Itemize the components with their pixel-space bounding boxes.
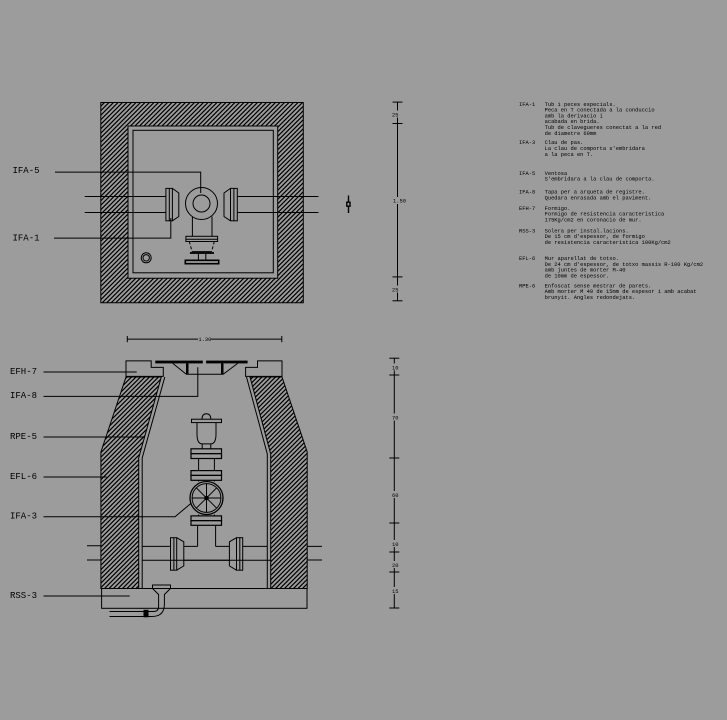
svg-text:25: 25 (392, 288, 398, 294)
svg-text:10: 10 (392, 366, 398, 372)
svg-text:1.50: 1.50 (393, 199, 406, 205)
svg-text:de diametre 60mm: de diametre 60mm (545, 131, 597, 137)
svg-text:175Kg/cm2 en coronacio de mur.: 175Kg/cm2 en coronacio de mur. (545, 217, 642, 223)
svg-text:EFH-7: EFH-7 (519, 206, 535, 212)
svg-text:25: 25 (392, 113, 398, 119)
svg-text:IFA-5: IFA-5 (13, 166, 40, 176)
svg-text:IFA-8: IFA-8 (519, 190, 535, 196)
svg-text:IFA-1: IFA-1 (519, 102, 535, 108)
svg-text:RSS-3: RSS-3 (10, 591, 37, 601)
svg-text:10: 10 (392, 542, 398, 548)
svg-text:IFA-8: IFA-8 (10, 391, 37, 401)
svg-text:RSS-3: RSS-3 (519, 228, 535, 234)
svg-text:brunyit. Angles redondejats.: brunyit. Angles redondejats. (545, 295, 636, 301)
svg-text:de 10mm de espessor.: de 10mm de espessor. (545, 274, 610, 280)
svg-text:1.30: 1.30 (198, 337, 211, 343)
svg-text:IFA-3: IFA-3 (10, 511, 37, 521)
svg-text:15: 15 (392, 589, 398, 595)
svg-text:EFL-6: EFL-6 (10, 472, 37, 482)
svg-text:EFL-6: EFL-6 (519, 256, 535, 262)
svg-text:RPE-5: RPE-5 (10, 432, 37, 442)
svg-text:S'embridara a la clau de compo: S'embridara a la clau de comporta. (545, 177, 655, 183)
svg-text:IFA-5: IFA-5 (519, 171, 535, 177)
svg-text:60: 60 (392, 493, 398, 499)
svg-text:20: 20 (392, 563, 398, 569)
svg-text:RPE-6: RPE-6 (519, 283, 535, 289)
svg-text:70: 70 (392, 416, 398, 422)
svg-text:IFA-1: IFA-1 (13, 233, 40, 243)
svg-text:IFA-3: IFA-3 (519, 140, 535, 146)
svg-text:de resistencia caracteristica: de resistencia caracteristica 100Kg/cm2 (545, 240, 671, 246)
svg-text:Quedara enrasada amb el pavime: Quedara enrasada amb el paviment. (545, 195, 652, 201)
svg-text:a la peca en T.: a la peca en T. (545, 152, 594, 158)
svg-text:EFH-7: EFH-7 (10, 367, 37, 377)
